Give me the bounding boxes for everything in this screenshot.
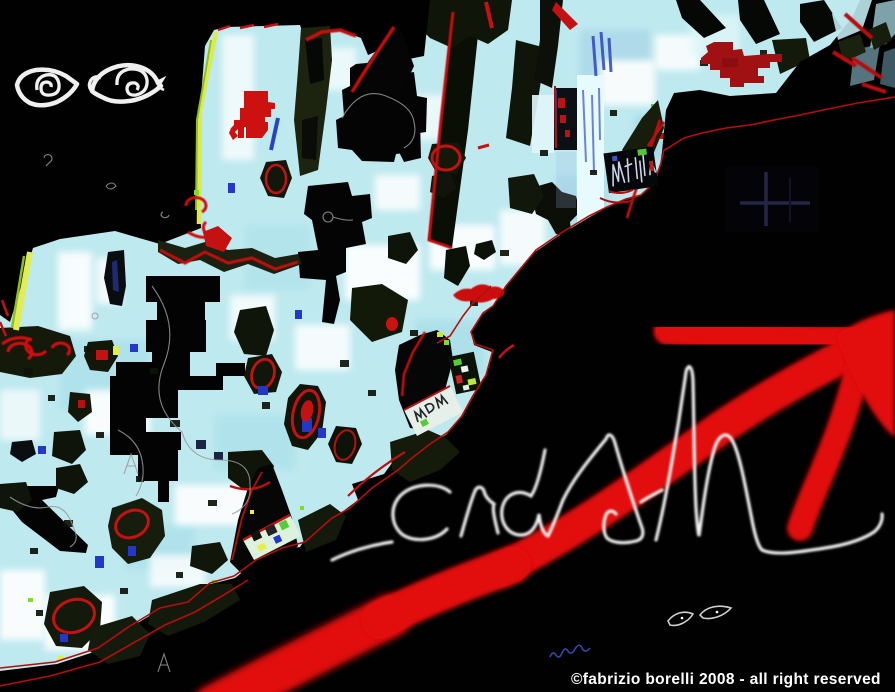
- svg-text:©fabrizio borelli 2008 - all r: ©fabrizio borelli 2008 - all right reser…: [571, 671, 881, 688]
